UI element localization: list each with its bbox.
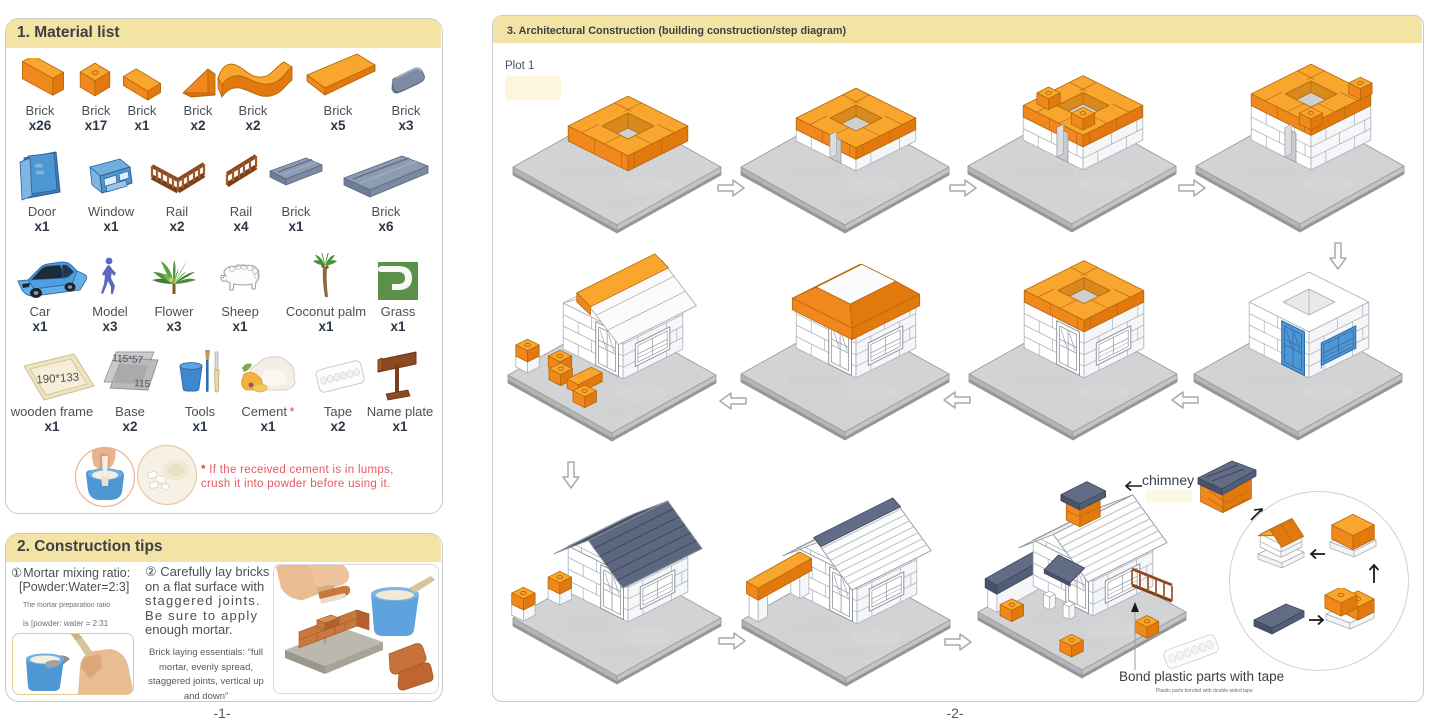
svg-text:115: 115 [134, 378, 151, 390]
svg-text:115*57: 115*57 [112, 353, 144, 366]
